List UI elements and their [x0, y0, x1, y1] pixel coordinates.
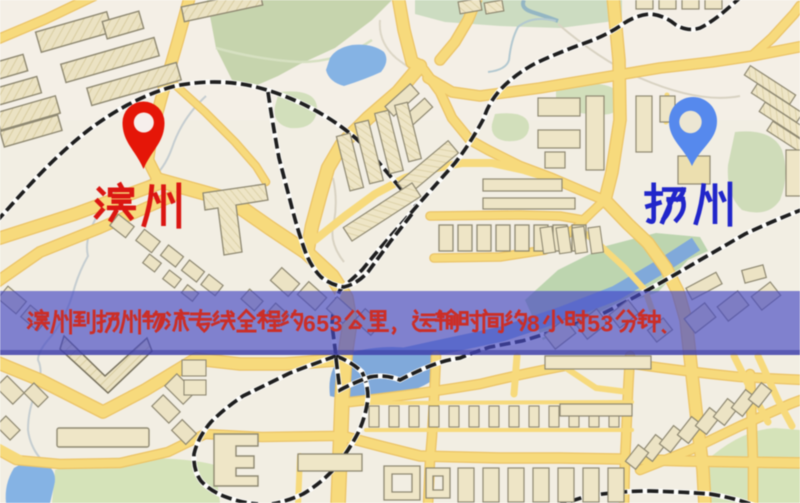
svg-text:653: 653 — [303, 311, 343, 337]
svg-text:8: 8 — [527, 311, 540, 337]
svg-text:53: 53 — [587, 311, 614, 337]
